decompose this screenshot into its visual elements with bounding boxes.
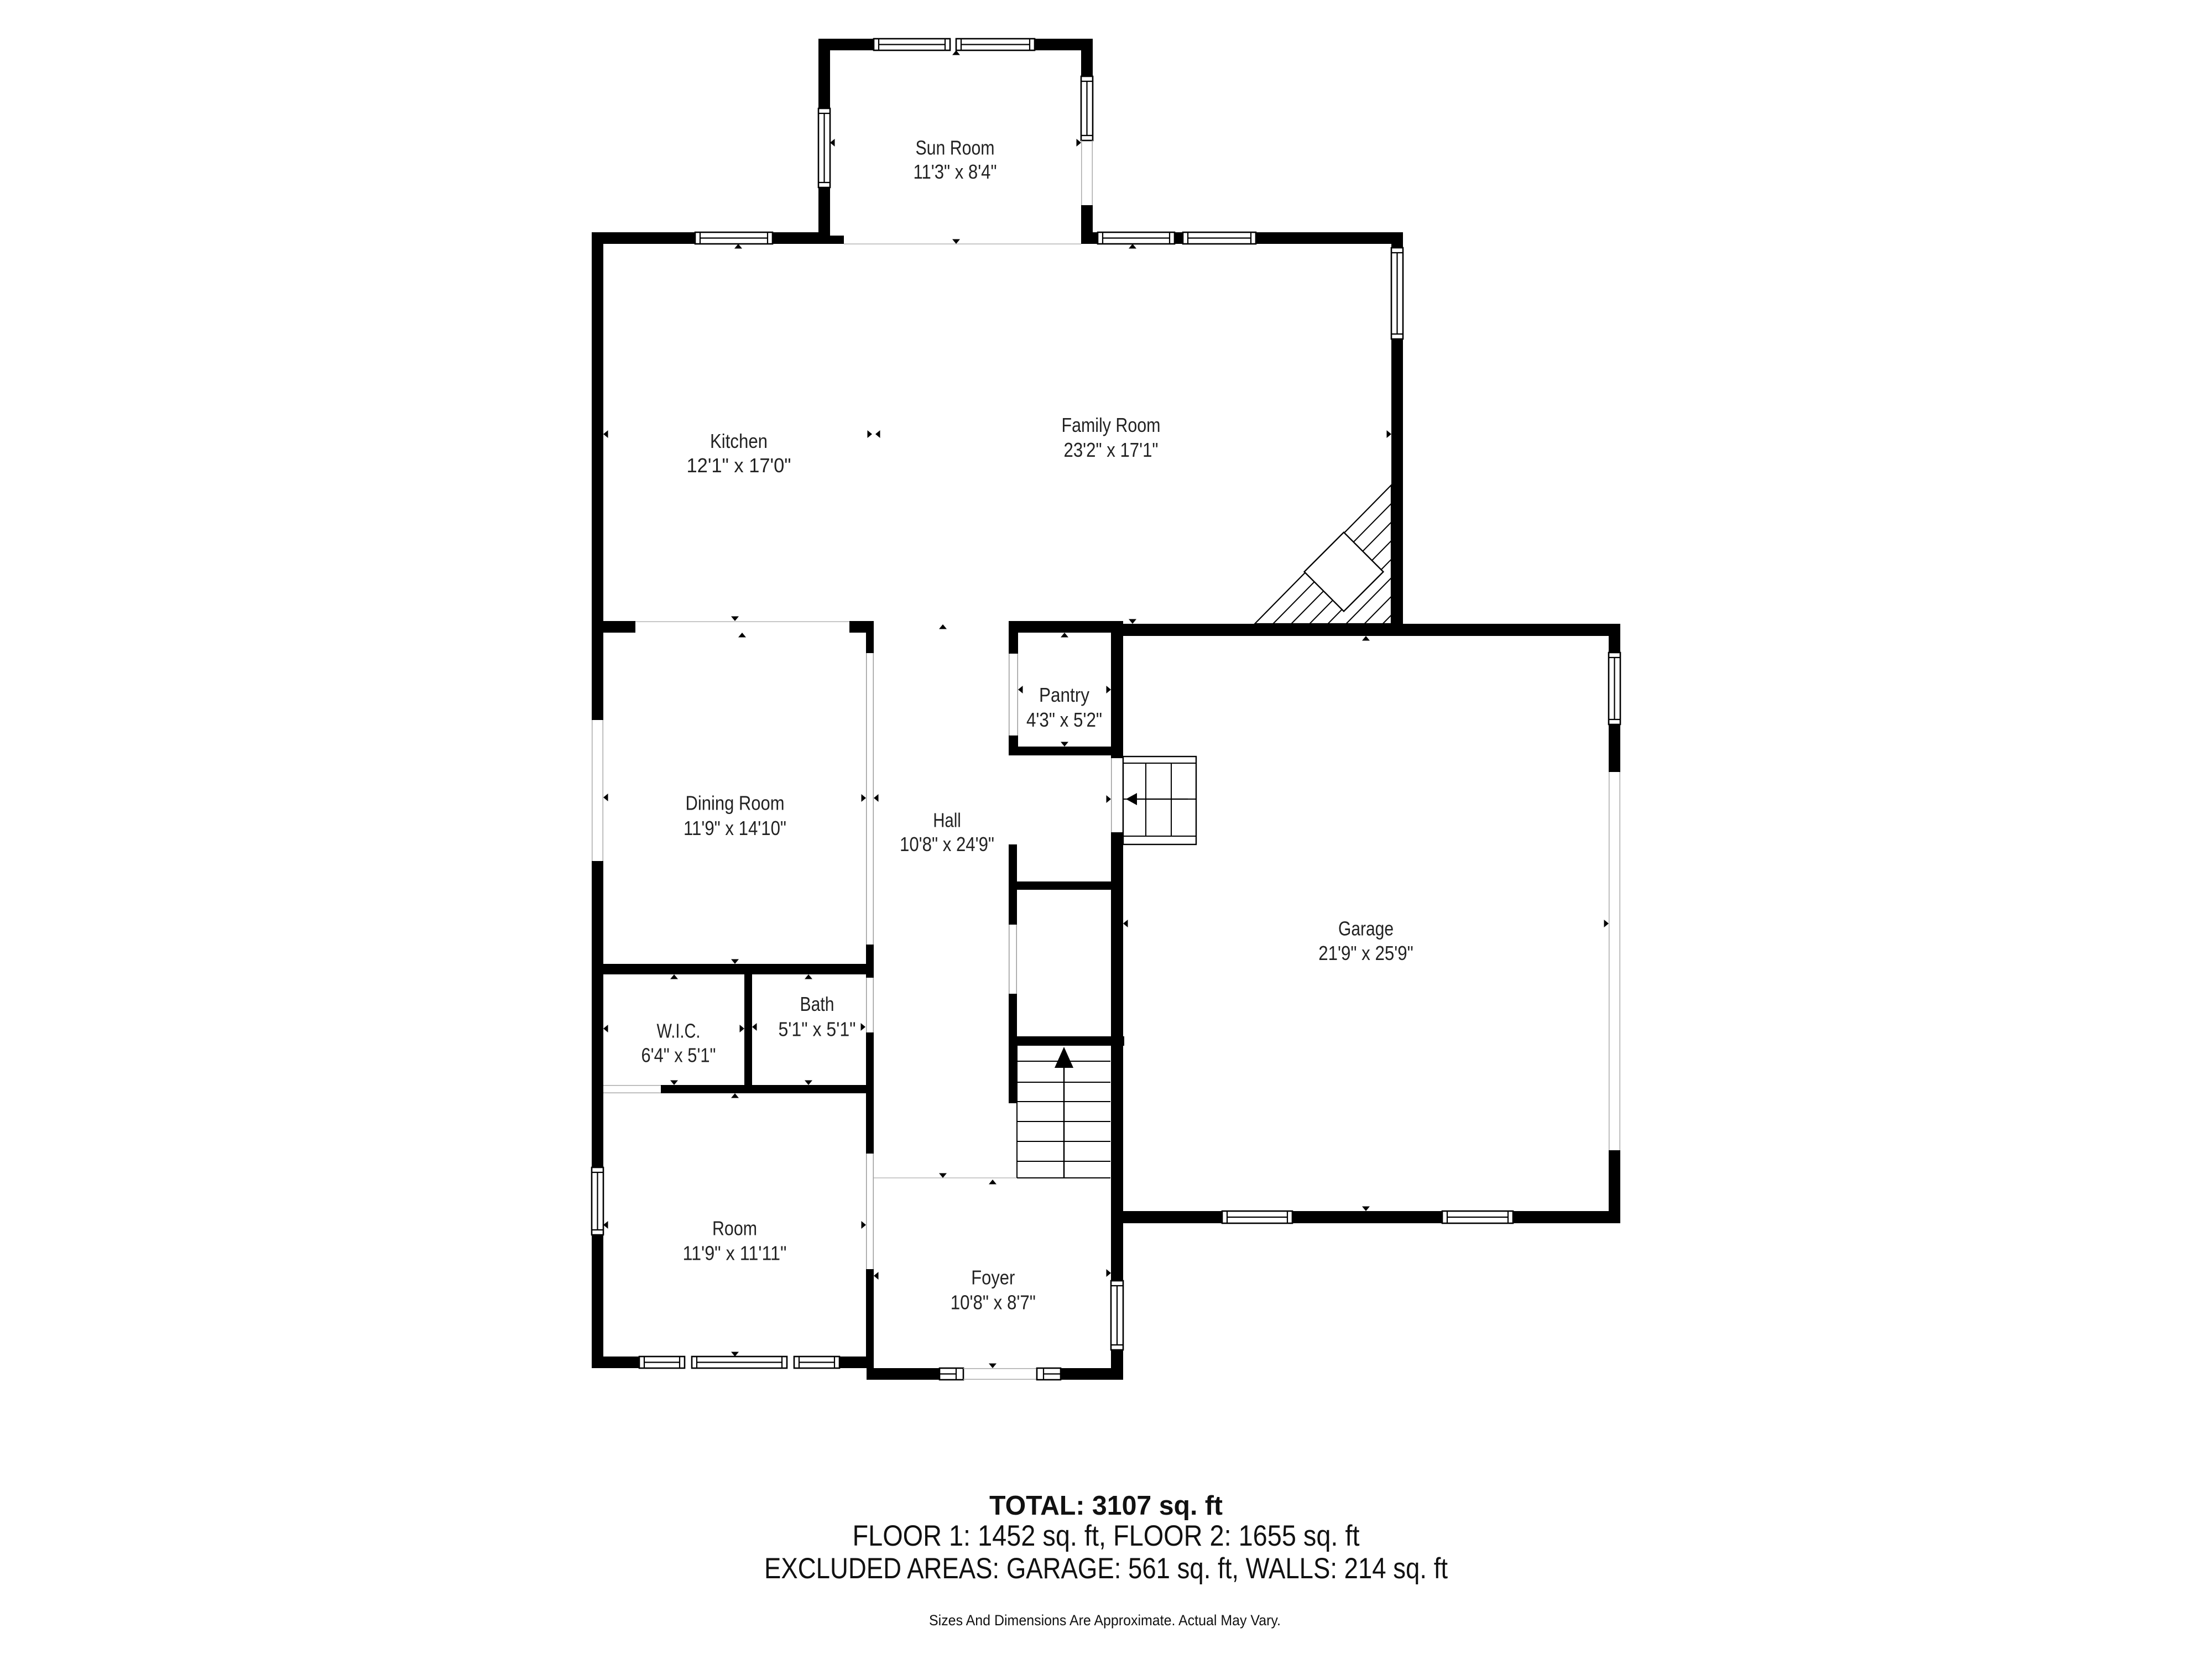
svg-text:Bath: Bath [800,993,834,1015]
svg-text:Sun Room: Sun Room [916,137,995,159]
svg-text:11'9" x 11'11": 11'9" x 11'11" [683,1242,787,1265]
svg-text:Pantry: Pantry [1039,684,1089,706]
svg-text:Garage: Garage [1338,917,1394,940]
svg-text:10'8" x 24'9": 10'8" x 24'9" [900,833,994,855]
svg-text:W.I.C.: W.I.C. [657,1020,701,1042]
svg-text:5'1" x 5'1": 5'1" x 5'1" [779,1018,856,1041]
svg-text:Sizes And Dimensions Are Appro: Sizes And Dimensions Are Approximate. Ac… [929,1612,1281,1629]
svg-text:11'3" x 8'4": 11'3" x 8'4" [914,160,997,183]
svg-text:11'9" x 14'10": 11'9" x 14'10" [684,817,786,839]
svg-text:21'9" x 25'9": 21'9" x 25'9" [1318,942,1413,964]
svg-text:12'1" x 17'0": 12'1" x 17'0" [687,454,791,477]
svg-text:23'2" x 17'1": 23'2" x 17'1" [1064,439,1159,461]
svg-text:Family Room: Family Room [1062,414,1161,436]
svg-text:Kitchen: Kitchen [710,430,768,452]
svg-text:Hall: Hall [933,809,961,832]
svg-text:Room: Room [712,1217,757,1239]
svg-text:Dining Room: Dining Room [686,792,785,815]
svg-text:10'8" x 8'7": 10'8" x 8'7" [951,1291,1036,1314]
svg-text:EXCLUDED AREAS: GARAGE: 561 sq: EXCLUDED AREAS: GARAGE: 561 sq. ft, WALL… [764,1552,1448,1585]
svg-text:TOTAL: 3107 sq. ft: TOTAL: 3107 sq. ft [989,1491,1223,1521]
svg-text:6'4" x 5'1": 6'4" x 5'1" [641,1044,716,1067]
svg-text:FLOOR 1: 1452 sq. ft, FLOOR 2:: FLOOR 1: 1452 sq. ft, FLOOR 2: 1655 sq. … [853,1520,1360,1552]
svg-text:Foyer: Foyer [971,1266,1015,1288]
svg-text:4'3" x 5'2": 4'3" x 5'2" [1026,708,1102,731]
